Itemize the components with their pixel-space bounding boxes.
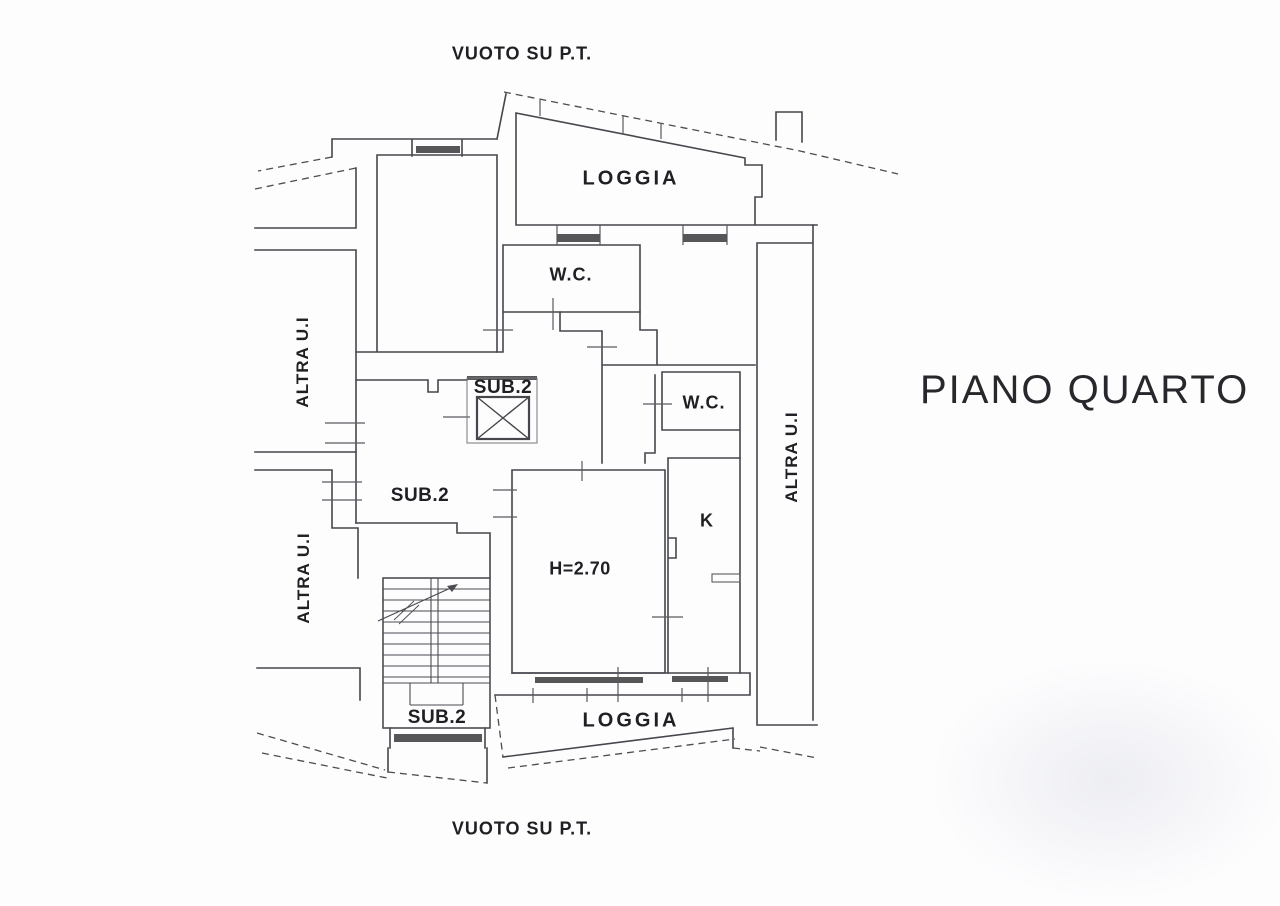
floor-title: PIANO QUARTO (920, 368, 1249, 413)
room-label-sub2-stairs: SUB.2 (408, 707, 466, 729)
fittings (712, 574, 740, 582)
room-label-wc-upper: W.C. (550, 265, 593, 286)
void-note-bottom: VUOTO SU P.T. (452, 819, 592, 840)
window-sills (394, 146, 728, 742)
staircase (378, 578, 490, 728)
room-label-sub2-elevator: SUB.2 (474, 377, 532, 399)
neighbor-label-left-lower: ALTRA U.I (294, 532, 314, 623)
floor-plan-page: VUOTO SU P.T. LOGGIA W.C. ALTRA U.I SUB.… (0, 0, 1280, 906)
void-note-top: VUOTO SU P.T. (452, 44, 592, 65)
room-label-loggia-top: LOGGIA (583, 168, 680, 191)
room-label-wc-lower: W.C. (683, 393, 726, 414)
room-label-loggia-bottom: LOGGIA (583, 710, 680, 733)
ceiling-height-note: H=2.70 (549, 559, 611, 580)
room-label-sub2-hall: SUB.2 (391, 485, 449, 507)
stair-direction-arrowhead (447, 584, 458, 592)
room-label-kitchen: K (700, 511, 714, 532)
neighbor-label-left-upper: ALTRA U.I (293, 316, 313, 407)
floor-plan-drawing (0, 0, 1280, 906)
neighbor-label-right: ALTRA U.I (782, 411, 802, 502)
